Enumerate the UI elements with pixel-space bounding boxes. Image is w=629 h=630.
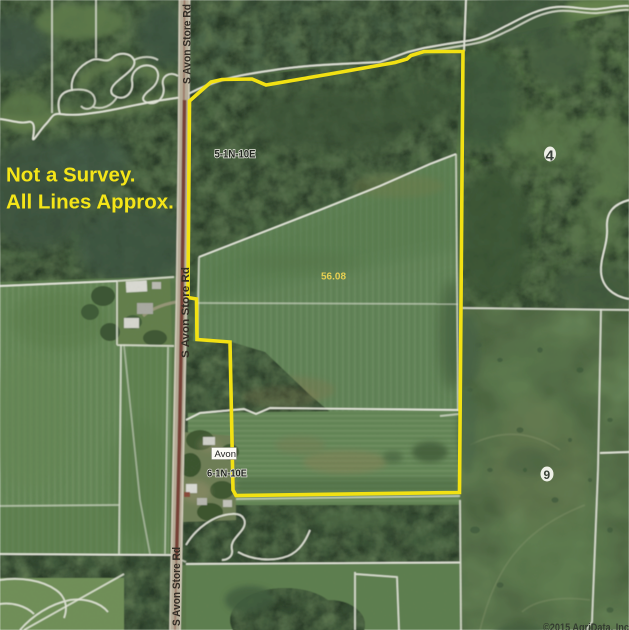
svg-text:S Avon Store Rd: S Avon Store Rd bbox=[171, 547, 183, 626]
svg-text:All Lines Approx.: All Lines Approx. bbox=[6, 191, 174, 214]
svg-text:S Avon Store Rd: S Avon Store Rd bbox=[182, 4, 194, 84]
svg-text:Avon: Avon bbox=[215, 449, 236, 460]
svg-text:6-1N-10E: 6-1N-10E bbox=[207, 468, 247, 480]
svg-text:S Avon Store Rd: S Avon Store Rd bbox=[180, 267, 192, 358]
svg-text:9: 9 bbox=[544, 468, 551, 482]
svg-text:5-1N-10E: 5-1N-10E bbox=[215, 149, 256, 161]
svg-text:©2015 AgriData, Inc: ©2015 AgriData, Inc bbox=[543, 622, 629, 630]
svg-text:Not a Survey.: Not a Survey. bbox=[6, 164, 136, 187]
svg-text:56.08: 56.08 bbox=[321, 271, 346, 283]
svg-text:4: 4 bbox=[546, 148, 555, 165]
